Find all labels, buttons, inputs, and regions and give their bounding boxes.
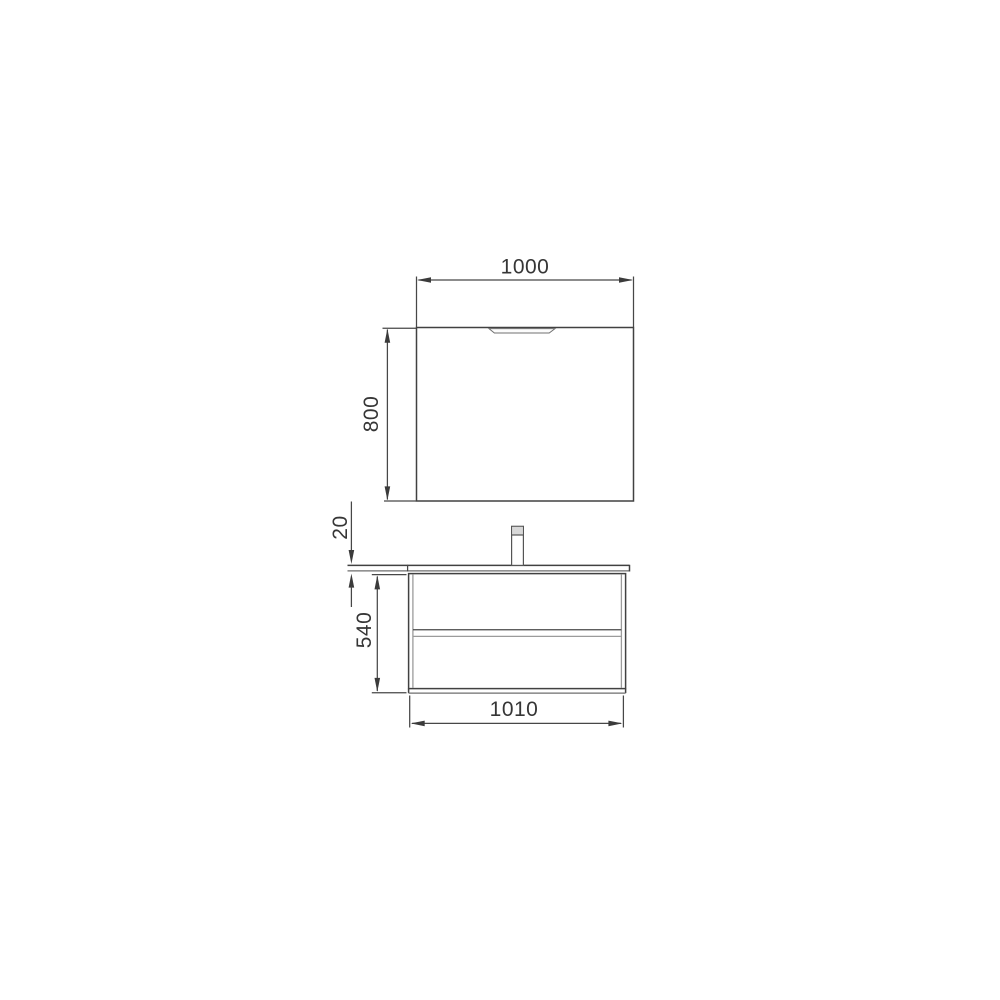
cabinet-outline — [409, 574, 626, 689]
dim-mirror-height-label: 800 — [360, 396, 383, 433]
arrow-up-icon — [349, 574, 355, 588]
faucet — [512, 526, 524, 565]
arrow-left-icon — [411, 721, 425, 727]
technical-drawing-page: 1000 800 20 — [0, 0, 1000, 1000]
dim-cabinet-height: 540 — [353, 575, 407, 693]
mirror-light-recess — [489, 329, 555, 333]
arrow-left-icon — [417, 277, 431, 283]
arrow-down-icon — [349, 550, 355, 564]
arrow-up-icon — [375, 575, 381, 589]
arrow-right-icon — [619, 277, 633, 283]
mirror-view — [417, 328, 634, 502]
dim-cabinet-width: 1010 — [410, 696, 624, 728]
faucet-cap — [512, 527, 523, 535]
dim-mirror-height: 800 — [360, 328, 416, 501]
dim-mirror-width-label: 1000 — [501, 256, 550, 279]
dim-cabinet-height-label: 540 — [353, 612, 376, 649]
dim-countertop-thickness-label: 20 — [329, 515, 352, 539]
arrow-down-icon — [375, 678, 381, 692]
mirror-outline — [417, 328, 634, 502]
arrow-right-icon — [608, 721, 622, 727]
vanity-dimension-drawing: 1000 800 20 — [0, 0, 1000, 1000]
arrow-down-icon — [385, 486, 391, 500]
dim-countertop-thickness: 20 — [329, 502, 354, 608]
cabinet-view — [409, 574, 626, 694]
dim-mirror-width: 1000 — [417, 256, 634, 328]
countertop — [348, 565, 630, 572]
dim-cabinet-width-label: 1010 — [490, 698, 539, 721]
arrow-up-icon — [385, 329, 391, 343]
